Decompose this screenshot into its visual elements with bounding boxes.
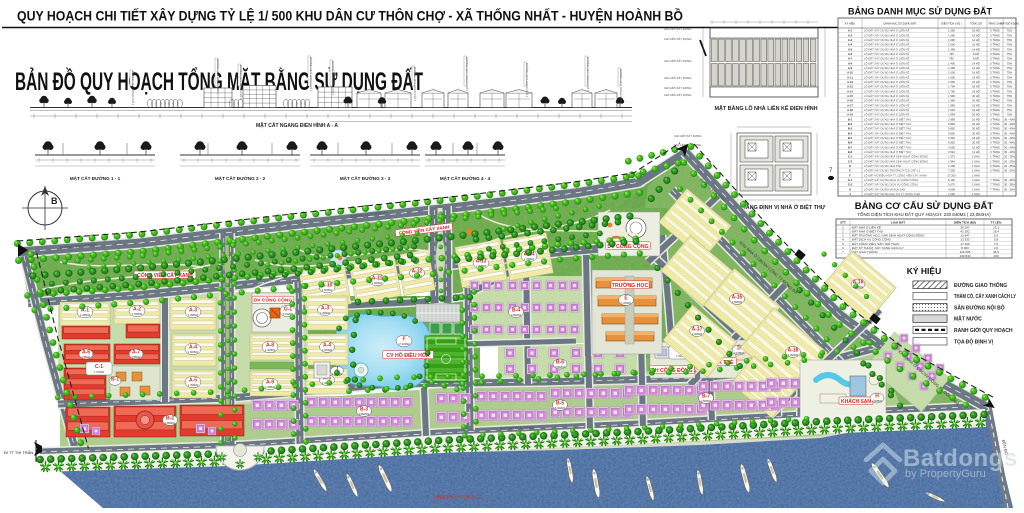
svg-text:1 KHU: 1 KHU [972, 192, 980, 196]
svg-text:B-6: B-6 [848, 141, 853, 145]
svg-text:A-3: A-3 [189, 308, 197, 314]
svg-text:9 896: 9 896 [948, 122, 955, 126]
svg-text:5 TẦNG: 5 TẦNG [990, 71, 1000, 75]
svg-text:B-7: B-7 [702, 394, 710, 400]
svg-text:A-17: A-17 [692, 327, 703, 333]
svg-text:100: 100 [993, 254, 998, 258]
svg-text:1 398M2: 1 398M2 [265, 385, 276, 389]
svg-text:1 600: 1 600 [948, 71, 955, 75]
svg-text:75%: 75% [1007, 43, 1013, 47]
svg-text:G-1: G-1 [284, 307, 293, 313]
svg-text:2 158M2: 2 158M2 [734, 351, 745, 355]
svg-text:5 TẦNG: 5 TẦNG [990, 29, 1000, 33]
svg-text:1 096: 1 096 [948, 29, 955, 33]
svg-text:A-3: A-3 [321, 306, 329, 312]
svg-text:B-1: B-1 [848, 117, 853, 121]
svg-text:MẶT CẮT NGANG ĐIỂN HÌNH A - A: MẶT CẮT NGANG ĐIỂN HÌNH A - A [256, 121, 338, 129]
svg-text:75%: 75% [1007, 85, 1013, 89]
svg-text:3 TẦNG: 3 TẦNG [990, 141, 1000, 145]
svg-text:KÝ HIỆU: KÝ HIỆU [907, 265, 941, 276]
svg-text:3 TẦNG: 3 TẦNG [990, 131, 1000, 135]
svg-text:A-9: A-9 [848, 66, 853, 70]
svg-text:B-4: B-4 [848, 131, 853, 135]
svg-text:5 TẦNG: 5 TẦNG [990, 57, 1000, 61]
svg-text:9 896M2: 9 896M2 [165, 421, 176, 425]
svg-text:2 158: 2 158 [948, 164, 955, 168]
svg-text:3 TẦNG: 3 TẦNG [990, 136, 1000, 140]
svg-text:1 KHU: 1 KHU [972, 169, 980, 173]
svg-text:5 TẦNG: 5 TẦNG [990, 66, 1000, 70]
svg-text:30 - 40%: 30 - 40% [1004, 136, 1015, 140]
svg-text:LOẠI ĐẤT: LOẠI ĐẤT [891, 219, 905, 224]
svg-text:30 - 40%: 30 - 40% [1004, 127, 1015, 131]
svg-text:A-8: A-8 [848, 61, 853, 65]
svg-text:A-19: A-19 [847, 113, 853, 117]
svg-text:5 192: 5 192 [948, 178, 955, 182]
svg-text:TỶ LỆ%: TỶ LỆ% [990, 219, 1002, 224]
svg-text:75%: 75% [1007, 57, 1013, 61]
svg-text:4 608M2: 4 608M2 [872, 399, 883, 403]
svg-text:A-5: A-5 [848, 47, 853, 51]
svg-text:4 608: 4 608 [948, 187, 955, 191]
svg-text:75%: 75% [1007, 29, 1013, 33]
svg-text:20 - 25%: 20 - 25% [1004, 169, 1015, 173]
svg-text:5 TẦNG: 5 TẦNG [990, 108, 1000, 112]
svg-text:E: E [849, 169, 851, 173]
svg-text:5 TẦNG: 5 TẦNG [990, 89, 1000, 93]
svg-text:CHỈ GIỚI XÂY DỰNG: CHỈ GIỚI XÂY DỰNG [664, 58, 691, 63]
svg-text:3 TẦNG: 3 TẦNG [990, 145, 1000, 149]
svg-text:1 994: 1 994 [948, 113, 955, 117]
svg-text:5 TẦNG: 5 TẦNG [990, 38, 1000, 42]
svg-text:75%: 75% [1007, 99, 1013, 103]
svg-text:1 600: 1 600 [948, 80, 955, 84]
svg-text:3 650: 3 650 [948, 145, 955, 149]
svg-text:A-1: A-1 [848, 29, 853, 33]
svg-text:1 396: 1 396 [948, 47, 955, 51]
svg-text:5 TẦNG: 5 TẦNG [990, 99, 1000, 103]
svg-text:MẶT CẮT ĐƯỜNG 3 - 3: MẶT CẮT ĐƯỜNG 3 - 3 [340, 174, 391, 181]
svg-text:G-1: G-1 [848, 178, 853, 182]
svg-text:5 075: 5 075 [948, 183, 955, 187]
svg-text:7 TẦNG: 7 TẦNG [990, 178, 1000, 182]
svg-text:MẶT CẮT ĐƯỜNG 2 - 2: MẶT CẮT ĐƯỜNG 2 - 2 [215, 174, 266, 181]
svg-text:30 - 40%: 30 - 40% [1004, 150, 1015, 154]
svg-text:795: 795 [949, 57, 954, 61]
svg-text:1 000: 1 000 [948, 192, 955, 196]
svg-text:SÂN ĐƯỜNG NỘI BỘ: SÂN ĐƯỜNG NỘI BỘ [954, 303, 1005, 311]
svg-text:DIỆN TÍCH (M2): DIỆN TÍCH (M2) [954, 219, 976, 224]
svg-text:BẢNG CƠ CẤU SỬ DỤNG ĐẤT: BẢNG CƠ CẤU SỬ DỤNG ĐẤT [855, 200, 994, 212]
svg-text:1 096M2: 1 096M2 [132, 312, 143, 316]
svg-text:5 TẦNG: 5 TẦNG [990, 113, 1000, 117]
svg-text:A-16: A-16 [847, 99, 853, 103]
svg-text:7 200M2: 7 200M2 [621, 301, 632, 305]
svg-text:A-7: A-7 [848, 57, 853, 61]
svg-text:A-15: A-15 [732, 295, 743, 301]
svg-text:1 996: 1 996 [948, 94, 955, 98]
svg-text:30 - 35%: 30 - 35% [1004, 178, 1015, 182]
svg-text:3 TẦNG: 3 TẦNG [990, 127, 1000, 131]
svg-text:A-4: A-4 [848, 43, 853, 47]
svg-text:A-3: A-3 [848, 38, 853, 42]
svg-text:THẢM CỎ, CÂY XANH CÁCH LY: THẢM CỎ, CÂY XANH CÁCH LY [954, 293, 1017, 300]
svg-text:30 - 35%: 30 - 35% [1004, 183, 1015, 187]
svg-text:1 994: 1 994 [948, 108, 955, 112]
svg-text:1 794: 1 794 [948, 85, 955, 89]
svg-text:BẢNG DANH MỤC SỬ DỤNG ĐẤT: BẢNG DANH MỤC SỬ DỤNG ĐẤT [848, 6, 992, 17]
svg-text:A-13: A-13 [847, 85, 853, 89]
svg-text:9 892: 9 892 [948, 127, 955, 131]
svg-text:A-4: A-4 [323, 343, 331, 349]
svg-text:6 892: 6 892 [948, 141, 955, 145]
svg-text:1 600M2: 1 600M2 [322, 288, 333, 292]
svg-text:9 892: 9 892 [948, 131, 955, 135]
svg-text:CV HỒ ĐIỀU HÒA: CV HỒ ĐIỀU HÒA [386, 351, 429, 359]
svg-text:75%: 75% [1007, 75, 1013, 79]
svg-text:A-2: A-2 [133, 307, 141, 313]
svg-text:MẶT BẰNG LÔ NHÀ LIÊN KẾ ĐIỂN H: MẶT BẰNG LÔ NHÀ LIÊN KẾ ĐIỂN HÌNH [714, 104, 817, 112]
svg-text:TRƯỜNG HỌC: TRƯỜNG HỌC [612, 281, 649, 289]
svg-text:795M2: 795M2 [82, 355, 90, 359]
svg-text:1 994M2: 1 994M2 [788, 353, 799, 357]
svg-text:1 600M2: 1 600M2 [188, 350, 199, 354]
svg-text:A-8: A-8 [266, 343, 274, 349]
svg-text:30 - 40%: 30 - 40% [1004, 145, 1015, 149]
svg-text:A-11: A-11 [847, 75, 853, 79]
svg-text:D: D [737, 346, 741, 352]
svg-text:75%: 75% [1007, 94, 1013, 98]
svg-text:17 200: 17 200 [947, 173, 956, 177]
svg-text:1 KHU: 1 KHU [972, 178, 980, 182]
svg-text:A-9: A-9 [266, 380, 274, 386]
svg-text:7 TẦNG: 7 TẦNG [990, 183, 1000, 187]
svg-text:1 373M2: 1 373M2 [94, 370, 105, 374]
svg-text:5 TẦNG: 5 TẦNG [990, 94, 1000, 98]
svg-text:7 200: 7 200 [948, 169, 955, 173]
svg-text:1 996: 1 996 [948, 103, 955, 107]
svg-text:75%: 75% [1007, 38, 1013, 42]
svg-text:1 996: 1 996 [948, 99, 955, 103]
svg-text:3 TẦNG: 3 TẦNG [990, 117, 1000, 121]
svg-text:6 892M2: 6 892M2 [555, 365, 566, 369]
svg-text:CHỈ GIỚI XÂY DỰNG: CHỈ GIỚI XÂY DỰNG [664, 26, 691, 31]
svg-text:1 600: 1 600 [948, 75, 955, 79]
svg-text:7 TẦNG: 7 TẦNG [990, 187, 1000, 191]
svg-text:B-3: B-3 [360, 407, 368, 413]
svg-text:B-1: B-1 [111, 377, 119, 383]
svg-text:5 TẦNG: 5 TẦNG [990, 52, 1000, 56]
svg-text:1 600: 1 600 [948, 43, 955, 47]
svg-text:75%: 75% [1007, 71, 1013, 75]
svg-text:1 400M2: 1 400M2 [265, 348, 276, 352]
svg-text:20 - 25%: 20 - 25% [1004, 159, 1015, 163]
svg-text:2 TẦNG: 2 TẦNG [990, 169, 1000, 173]
svg-text:MẶT NƯỚC: MẶT NƯỚC [954, 315, 982, 323]
svg-text:1 096M2: 1 096M2 [188, 313, 199, 317]
svg-text:30 - 40%: 30 - 40% [1004, 141, 1015, 145]
svg-text:20 - 25%: 20 - 25% [1004, 155, 1015, 159]
svg-text:30 - 40%: 30 - 40% [1004, 131, 1015, 135]
svg-text:H: H [849, 187, 851, 191]
svg-text:1 600M2: 1 600M2 [322, 348, 333, 352]
svg-text:5 TẦNG: 5 TẦNG [990, 75, 1000, 79]
svg-text:75%: 75% [1007, 108, 1013, 112]
svg-text:A-14: A-14 [847, 89, 853, 93]
svg-text:75%: 75% [1007, 80, 1013, 84]
svg-text:5 TẦNG: 5 TẦNG [990, 33, 1000, 37]
svg-text:1 398: 1 398 [948, 66, 955, 70]
svg-text:A-10: A-10 [847, 71, 853, 75]
svg-text:F: F [402, 337, 405, 343]
svg-text:75%: 75% [1007, 103, 1013, 107]
svg-text:A-18: A-18 [788, 348, 799, 354]
svg-text:B-3: B-3 [848, 127, 853, 131]
svg-text:1 KHU: 1 KHU [972, 155, 980, 159]
svg-text:75%: 75% [1007, 89, 1013, 93]
svg-text:1 KHU: 1 KHU [972, 164, 980, 168]
svg-text:1 373: 1 373 [948, 155, 955, 159]
svg-text:A-15: A-15 [847, 94, 853, 98]
svg-text:CHỈ GIỚI XÂY DỰNG: CHỈ GIỚI XÂY DỰNG [664, 75, 691, 80]
svg-text:1 796: 1 796 [948, 89, 955, 93]
svg-text:A-12: A-12 [847, 80, 853, 84]
svg-text:1 400: 1 400 [948, 61, 955, 65]
svg-text:1 944: 1 944 [948, 159, 955, 163]
svg-text:A-6: A-6 [82, 350, 90, 356]
svg-text:CHỈ GIỚI XÂY DỰNG: CHỈ GIỚI XÂY DỰNG [674, 133, 701, 138]
svg-text:75%: 75% [1007, 52, 1013, 56]
svg-text:20 - 25%: 20 - 25% [1004, 164, 1015, 168]
svg-text:B-8: B-8 [848, 150, 853, 154]
svg-text:5 TẦNG: 5 TẦNG [990, 43, 1000, 47]
svg-text:230 840: 230 840 [960, 254, 971, 258]
svg-text:3 TẦNG: 3 TẦNG [990, 150, 1000, 154]
svg-text:B-6: B-6 [556, 360, 564, 366]
svg-text:75%: 75% [1007, 66, 1013, 70]
svg-text:75%: 75% [1007, 33, 1013, 37]
svg-text:30 - 35%: 30 - 35% [1004, 187, 1015, 191]
svg-text:A-17: A-17 [847, 103, 853, 107]
svg-text:5 392M2: 5 392M2 [555, 406, 566, 410]
svg-text:795M2: 795M2 [132, 355, 140, 359]
svg-text:5 TẦNG: 5 TẦNG [990, 47, 1000, 51]
svg-text:ĐI TT THỊ TRẤN: ĐI TT THỊ TRẤN [4, 450, 33, 455]
svg-text:9 892M2: 9 892M2 [359, 412, 370, 416]
svg-text:3 650M2: 3 650M2 [701, 399, 712, 403]
svg-text:1 996M2: 1 996M2 [732, 300, 743, 304]
svg-text:17 200M2: 17 200M2 [398, 342, 410, 346]
svg-text:C-1: C-1 [95, 364, 103, 370]
svg-text:B: B [51, 196, 58, 206]
svg-text:1 TẦNG: 1 TẦNG [990, 155, 1000, 159]
svg-text:30 - 40%: 30 - 40% [1004, 117, 1015, 121]
svg-text:ĐƯỜNG GIAO THÔNG: ĐƯỜNG GIAO THÔNG [954, 281, 1007, 289]
svg-text:TỔNG DIỆN TÍCH KHU ĐẤT QUY HOẠ: TỔNG DIỆN TÍCH KHU ĐẤT QUY HOẠCH: 230 84… [857, 212, 991, 217]
svg-text:C-1: C-1 [848, 155, 853, 159]
svg-text:MẶT CẮT ĐƯỜNG 4 - 4: MẶT CẮT ĐƯỜNG 4 - 4 [440, 174, 491, 181]
svg-text:D: D [849, 164, 851, 168]
svg-text:CHỈ GIỚI XÂY DỰNG: CHỈ GIỚI XÂY DỰNG [664, 85, 691, 90]
svg-text:C-2: C-2 [848, 159, 853, 163]
svg-text:A-5: A-5 [189, 378, 197, 384]
svg-text:5 392: 5 392 [948, 136, 955, 140]
svg-text:2 996: 2 996 [948, 117, 955, 121]
svg-text:75%: 75% [1007, 61, 1013, 65]
svg-text:2 TẦNG: 2 TẦNG [990, 164, 1000, 168]
svg-text:1 KHU: 1 KHU [972, 159, 980, 163]
svg-text:1 KHU: 1 KHU [972, 173, 980, 177]
svg-text:1 096: 1 096 [948, 38, 955, 42]
svg-text:H: H [875, 394, 879, 400]
svg-text:B-5: B-5 [848, 136, 853, 140]
svg-text:B-7: B-7 [848, 145, 853, 149]
svg-text:A-6: A-6 [848, 52, 853, 56]
svg-text:9 892M2: 9 892M2 [511, 313, 522, 317]
svg-text:5 TẦNG: 5 TẦNG [990, 85, 1000, 89]
svg-text:RANH GIỚI QUY HOẠCH: RANH GIỚI QUY HOẠCH [954, 326, 1013, 334]
svg-text:STT: STT [840, 220, 846, 224]
svg-text:B-4: B-4 [512, 308, 520, 314]
svg-text:A-2: A-2 [848, 33, 853, 37]
svg-text:1 TẦNG: 1 TẦNG [990, 159, 1000, 163]
svg-text:KHÁCH SẠN: KHÁCH SẠN [841, 398, 871, 405]
svg-text:A-4: A-4 [189, 345, 197, 351]
svg-text:1 096M2: 1 096M2 [80, 313, 91, 317]
svg-text:3 TẦNG: 3 TẦNG [990, 122, 1000, 126]
svg-text:5 TẦNG: 5 TẦNG [990, 80, 1000, 84]
svg-text:TỌA ĐỘ ĐỊNH VỊ: TỌA ĐỘ ĐỊNH VỊ [954, 337, 994, 345]
svg-text:VỊNH VINH CỬA LỤC: VỊNH VINH CỬA LỤC [433, 494, 482, 501]
svg-text:MẶT CẮT ĐƯỜNG 1 - 1: MẶT CẮT ĐƯỜNG 1 - 1 [70, 174, 121, 181]
svg-text:5 TẦNG: 5 TẦNG [990, 61, 1000, 65]
svg-text:75%: 75% [1007, 47, 1013, 51]
svg-text:3 542: 3 542 [948, 150, 955, 154]
svg-text:CHỈ GIỚI XÂY DỰNG: CHỈ GIỚI XÂY DỰNG [664, 36, 691, 41]
svg-text:5 TẦNG: 5 TẦNG [990, 103, 1000, 107]
svg-text:A-7: A-7 [132, 350, 140, 356]
svg-text:795: 795 [949, 52, 954, 56]
svg-text:1 996M2: 1 996M2 [692, 332, 703, 336]
svg-text:1 096M2: 1 096M2 [320, 311, 331, 315]
svg-text:1 KHU: 1 KHU [972, 183, 980, 187]
svg-text:A-11: A-11 [372, 276, 383, 282]
svg-text:QUY HOẠCH CHI TIẾT XÂY DỰNG TỶ: QUY HOẠCH CHI TIẾT XÂY DỰNG TỶ LỆ 1/ 500… [17, 7, 683, 25]
svg-text:CHỈ GIỚI XÂY DỰNG: CHỈ GIỚI XÂY DỰNG [664, 92, 691, 97]
svg-text:B-2: B-2 [166, 416, 174, 422]
svg-text:1 600M2: 1 600M2 [372, 281, 383, 285]
svg-text:75%: 75% [1007, 113, 1013, 117]
svg-text:1 096: 1 096 [948, 33, 955, 37]
svg-text:30 - 40%: 30 - 40% [1004, 122, 1015, 126]
svg-text:G-2: G-2 [848, 183, 853, 187]
svg-text:by PropertyGuru: by PropertyGuru [905, 468, 986, 480]
svg-text:B-2: B-2 [848, 122, 853, 126]
svg-text:1 396M2: 1 396M2 [188, 383, 199, 387]
svg-text:A-18: A-18 [847, 108, 853, 112]
svg-text:1 KHU: 1 KHU [972, 187, 980, 191]
svg-text:B-5: B-5 [556, 401, 564, 407]
